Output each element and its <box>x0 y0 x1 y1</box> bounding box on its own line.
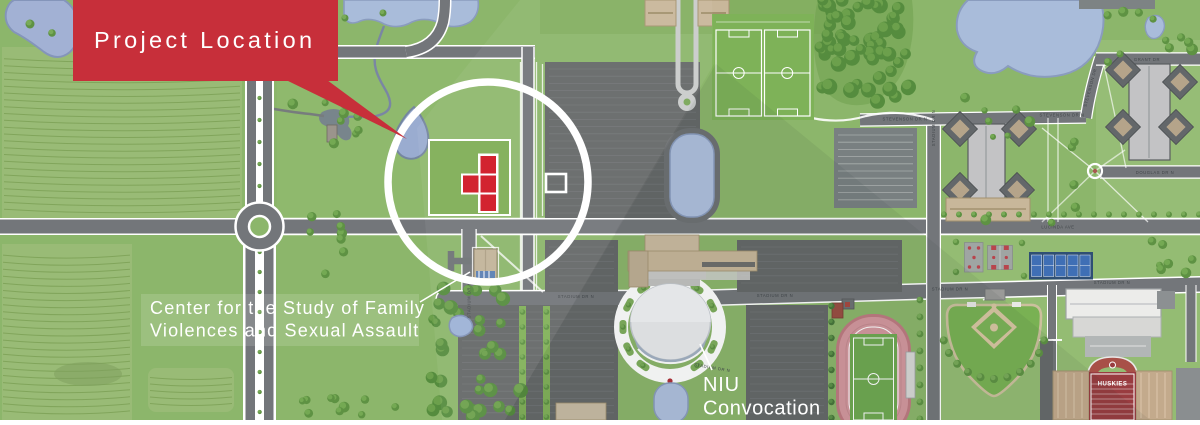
svg-text:LUCINDA AVE: LUCINDA AVE <box>1041 224 1074 229</box>
svg-text:STADIUM DR N: STADIUM DR N <box>931 110 936 147</box>
svg-text:STEVENSON DR N: STEVENSON DR N <box>1040 113 1085 118</box>
svg-text:Violences and Sexual Assault: Violences and Sexual Assault <box>150 321 419 341</box>
svg-text:STADIUM DR N: STADIUM DR N <box>1094 280 1131 285</box>
svg-text:STEVENSON DR N: STEVENSON DR N <box>883 117 928 122</box>
svg-text:Convocation: Convocation <box>703 398 821 420</box>
svg-text:Center for the Study of Family: Center for the Study of Family <box>150 298 425 318</box>
svg-text:GRANT DR: GRANT DR <box>1134 57 1160 62</box>
svg-text:DOUGLAS DR N: DOUGLAS DR N <box>1136 170 1174 175</box>
svg-text:Project Location: Project Location <box>94 27 315 53</box>
svg-text:NIU: NIU <box>703 374 740 396</box>
